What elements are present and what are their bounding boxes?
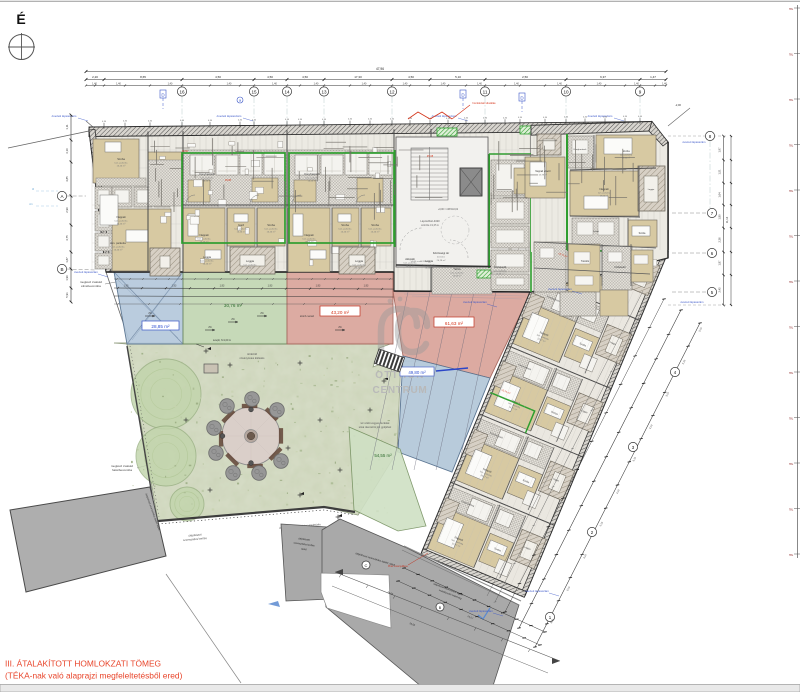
svg-text:Szoba: Szoba xyxy=(267,223,275,227)
svg-text:2%: 2% xyxy=(148,313,151,315)
svg-text:1,11: 1,11 xyxy=(65,124,69,130)
svg-text:54,55 m²: 54,55 m² xyxy=(374,453,392,458)
svg-text:5,10: 5,10 xyxy=(455,75,461,79)
svg-text:1,51: 1,51 xyxy=(718,169,722,175)
svg-text:homlokzati síkváltás: homlokzati síkváltás xyxy=(472,101,496,105)
svg-text:16,26 m²: 16,26 m² xyxy=(203,263,212,266)
svg-text:Tárolós: Tárolós xyxy=(581,260,590,263)
svg-text:lam. parketta: lam. parketta xyxy=(201,176,214,179)
svg-text:kerteme: kerteme xyxy=(437,256,446,259)
svg-text:2%: 2% xyxy=(260,313,263,315)
svg-text:1,40: 1,40 xyxy=(362,83,367,86)
svg-text:43,20 m²: 43,20 m² xyxy=(331,310,350,315)
svg-text:1,93: 1,93 xyxy=(268,285,273,288)
svg-text:Közlekedő: Közlekedő xyxy=(494,265,507,269)
svg-text:5,91: 5,91 xyxy=(65,292,69,298)
svg-text:lam. parketta: lam. parketta xyxy=(369,227,382,230)
svg-text:Szoba: Szoba xyxy=(341,223,349,227)
svg-text:78L: 78L xyxy=(789,53,794,57)
svg-text:-2,96: -2,96 xyxy=(675,103,681,107)
svg-text:61,63 m²: 61,63 m² xyxy=(445,321,464,326)
svg-text:utcai ütemszint jön gyűjtővel: utcai ütemszint jön gyűjtővel xyxy=(359,425,392,429)
svg-text:lam. parketta: lam. parketta xyxy=(198,237,211,240)
svg-text:78L: 78L xyxy=(789,98,794,102)
svg-text:23,98 m²: 23,98 m² xyxy=(539,173,548,176)
svg-text:1,40: 1,40 xyxy=(662,83,667,86)
svg-text:Nappali: Nappali xyxy=(116,215,126,219)
svg-text:1,40: 1,40 xyxy=(168,83,173,86)
svg-text:78L: 78L xyxy=(789,144,794,148)
svg-text:övezeti lépésszám: övezeti lépésszám xyxy=(469,609,493,613)
svg-text:14: 14 xyxy=(284,89,290,94)
svg-text:17,30: 17,30 xyxy=(354,75,362,79)
svg-text:Nappali: Nappali xyxy=(304,233,314,237)
svg-text:Közlekedő: Közlekedő xyxy=(614,266,626,269)
svg-text:örökzöld: örökzöld xyxy=(247,352,257,356)
svg-text:övezeti lépésszám: övezeti lépésszám xyxy=(548,287,572,291)
svg-text:Szoba: Szoba xyxy=(117,157,125,161)
svg-text:16,26 m²: 16,26 m² xyxy=(117,165,126,168)
svg-text:2,90: 2,90 xyxy=(65,207,69,213)
svg-text:1,40: 1,40 xyxy=(477,83,482,86)
svg-text:lam. parketta: lam. parketta xyxy=(494,269,507,272)
svg-text:(TÉKA-nak való alaprajzi megfe: (TÉKA-nak való alaprajzi megfeleltetésbő… xyxy=(5,671,183,681)
svg-text:2%: 2% xyxy=(208,327,211,329)
svg-text:1,97: 1,97 xyxy=(718,147,722,153)
svg-text:Szoba: Szoba xyxy=(622,149,630,153)
svg-text:1,93: 1,93 xyxy=(124,285,129,288)
svg-text:1,40: 1,40 xyxy=(634,83,639,86)
svg-text:16,26 m²: 16,26 m² xyxy=(246,267,255,270)
svg-text:Fürdő: Fürdő xyxy=(593,230,599,233)
svg-text:1,90: 1,90 xyxy=(65,275,69,281)
svg-text:1,47: 1,47 xyxy=(650,75,656,79)
svg-text:tér szélű vegyes burkolat: tér szélű vegyes burkolat xyxy=(361,421,390,425)
svg-text:lam. parketta: lam. parketta xyxy=(235,227,248,230)
svg-text:lam. parketta: lam. parketta xyxy=(115,219,128,222)
svg-text:19,06 m²: 19,06 m² xyxy=(600,195,609,198)
svg-text:15: 15 xyxy=(251,89,257,94)
svg-text:78L: 78L xyxy=(789,189,794,193)
svg-text:lam. parketta: lam. parketta xyxy=(620,153,633,156)
svg-text:a: a xyxy=(32,187,34,191)
svg-text:övezeti lépésszám: övezeti lépésszám xyxy=(217,114,242,118)
svg-text:16,26 m²: 16,26 m² xyxy=(406,265,415,268)
svg-text:4,50: 4,50 xyxy=(302,75,308,79)
svg-text:1,87: 1,87 xyxy=(718,260,722,266)
svg-text:tereplt, h=1,00 m: tereplt, h=1,00 m xyxy=(213,339,231,342)
svg-text:Nappali: Nappali xyxy=(599,187,609,191)
svg-text:növényzetes kiültetés: növényzetes kiültetés xyxy=(240,356,266,360)
svg-text:12: 12 xyxy=(389,89,395,94)
svg-text:49,80 m²: 49,80 m² xyxy=(408,370,426,375)
svg-text:1,40: 1,40 xyxy=(441,83,446,86)
svg-text:16,26 m²: 16,26 m² xyxy=(308,180,317,183)
svg-text:16,26 m²: 16,26 m² xyxy=(237,231,246,234)
svg-text:78L: 78L xyxy=(789,553,794,557)
svg-text:16,26 m²: 16,26 m² xyxy=(117,223,126,226)
svg-text:Lépcsőház-4320: Lépcsőház-4320 xyxy=(420,219,440,223)
svg-text:4,75: 4,75 xyxy=(65,235,69,241)
svg-text:1,64: 1,64 xyxy=(718,192,722,198)
svg-text:47,96: 47,96 xyxy=(376,67,384,71)
svg-text:16: 16 xyxy=(179,89,185,94)
svg-text:12,60 m²: 12,60 m² xyxy=(622,157,631,160)
svg-text:78L: 78L xyxy=(789,280,794,284)
svg-text:lam. parketta: lam. parketta xyxy=(598,191,611,194)
svg-text:±0,00: ±0,00 xyxy=(182,150,189,153)
svg-text:30,76 m²: 30,76 m² xyxy=(224,303,243,308)
svg-text:lam. parketta: lam. parketta xyxy=(353,263,366,266)
svg-text:8,65: 8,65 xyxy=(140,75,146,79)
svg-text:lam. parketta: lam. parketta xyxy=(339,227,352,230)
svg-text:1,93: 1,93 xyxy=(220,285,225,288)
svg-text:16,26 m²: 16,26 m² xyxy=(371,231,380,234)
svg-text:78L: 78L xyxy=(789,371,794,375)
svg-text:É: É xyxy=(16,11,25,27)
svg-text:1,40: 1,40 xyxy=(92,83,97,86)
svg-text:lam. parketta: lam. parketta xyxy=(265,227,278,230)
svg-text:4,50: 4,50 xyxy=(408,75,414,79)
svg-text:1,40: 1,40 xyxy=(116,83,121,86)
svg-text:Szoba: Szoba xyxy=(371,223,379,227)
svg-text:11: 11 xyxy=(483,89,488,94)
svg-text:Loggia: Loggia xyxy=(355,259,364,263)
svg-text:élmébevonóba: élmébevonóba xyxy=(81,284,101,288)
svg-text:16,26 m²: 16,26 m² xyxy=(496,273,505,276)
svg-text:C: C xyxy=(365,563,368,568)
svg-text:Loggia: Loggia xyxy=(246,259,255,263)
svg-text:2,36: 2,36 xyxy=(718,237,722,243)
svg-text:2,20: 2,20 xyxy=(92,75,98,79)
svg-text:Loggia: Loggia xyxy=(203,255,212,259)
svg-text:4,50: 4,50 xyxy=(215,75,221,79)
svg-text:övezeti lépésszám: övezeti lépésszám xyxy=(682,140,706,144)
svg-text:szóróba t=1,05 m: szóróba t=1,05 m xyxy=(421,224,439,227)
svg-text:övezeti lépésszám: övezeti lépésszám xyxy=(680,300,704,304)
svg-text:övezeti lépésszám: övezeti lépésszám xyxy=(588,114,613,118)
svg-text:1,93: 1,93 xyxy=(364,285,369,288)
svg-text:26,28 m²: 26,28 m² xyxy=(437,259,446,262)
svg-text:16,26 m²: 16,26 m² xyxy=(203,180,212,183)
svg-text:16,26 m²: 16,26 m² xyxy=(453,275,462,278)
svg-text:lam. parketta: lam. parketta xyxy=(303,237,316,240)
svg-text:III. ÁTALAKÍTOTT HOMLOKZATI TÖ: III. ÁTALAKÍTOTT HOMLOKZATI TÖMEG xyxy=(5,659,161,669)
svg-text:Gard: Gard xyxy=(238,223,244,227)
svg-text:Konyharészk: Konyharészk xyxy=(304,172,320,176)
svg-text:1,40: 1,40 xyxy=(314,83,319,86)
svg-text:1,80: 1,80 xyxy=(718,214,722,220)
svg-text:16,26 m²: 16,26 m² xyxy=(425,267,434,270)
svg-text:16,26 m²: 16,26 m² xyxy=(267,231,276,234)
svg-text:2,50: 2,50 xyxy=(522,75,528,79)
svg-text:lam. parketta: lam. parketta xyxy=(423,263,436,266)
svg-text:lam. parketta: lam. parketta xyxy=(110,241,126,245)
svg-text:1,87: 1,87 xyxy=(65,257,69,263)
svg-text:78L: 78L xyxy=(789,235,794,239)
svg-text:1,40: 1,40 xyxy=(272,83,277,86)
svg-text:A1: A1 xyxy=(29,202,33,206)
svg-text:övezeti lépésszám: övezeti lépésszám xyxy=(52,114,77,118)
svg-text:övezeti lépésszám: övezeti lépésszám xyxy=(463,300,487,304)
svg-text:1,40: 1,40 xyxy=(227,83,232,86)
svg-text:Loggia: Loggia xyxy=(425,259,434,263)
svg-text:45,08: 45,08 xyxy=(225,179,232,182)
svg-text:3,10: 3,10 xyxy=(65,148,69,154)
svg-text:16,26 m²: 16,26 m² xyxy=(341,231,350,234)
svg-text:lam. parketta: lam. parketta xyxy=(201,259,214,262)
svg-text:Szoba: Szoba xyxy=(639,232,646,235)
svg-text:2%: 2% xyxy=(338,327,341,329)
svg-text:4,85: 4,85 xyxy=(65,176,69,182)
svg-text:szonb. terasz: szonb. terasz xyxy=(300,315,315,318)
svg-text:Nappali: Nappali xyxy=(199,233,209,237)
svg-text:16,26 m²: 16,26 m² xyxy=(305,241,314,244)
svg-text:78L: 78L xyxy=(789,326,794,330)
svg-text:1,40: 1,40 xyxy=(597,83,602,86)
svg-text:78L: 78L xyxy=(789,417,794,421)
svg-text:határbevonóba: határbevonóba xyxy=(112,468,132,472)
svg-text:16,26 m²: 16,26 m² xyxy=(355,267,364,270)
svg-text:Akkpáló: Akkpáló xyxy=(405,257,415,261)
svg-text:78L: 78L xyxy=(789,508,794,512)
svg-text:B: B xyxy=(60,267,63,272)
svg-text:9: 9 xyxy=(639,89,642,94)
svg-text:1,93: 1,93 xyxy=(316,285,321,288)
svg-text:6,37: 6,37 xyxy=(600,75,606,79)
svg-text:10: 10 xyxy=(563,89,569,94)
svg-text:16,26 m²: 16,26 m² xyxy=(114,249,123,252)
svg-text:1,93: 1,93 xyxy=(172,285,177,288)
svg-text:16,26 m²: 16,26 m² xyxy=(200,241,209,244)
svg-text:4,50: 4,50 xyxy=(267,75,273,79)
svg-text:45,08: 45,08 xyxy=(427,155,434,158)
svg-text:1,40: 1,40 xyxy=(514,83,519,86)
svg-text:78L: 78L xyxy=(789,7,794,11)
svg-text:Nappali étkező: Nappali étkező xyxy=(535,170,551,173)
svg-text:lam. parketta: lam. parketta xyxy=(115,161,128,164)
svg-text:övezeti lépésszám: övezeti lépésszám xyxy=(525,589,549,593)
svg-text:lam. parketta: lam. parketta xyxy=(112,245,125,248)
svg-text:1,40: 1,40 xyxy=(557,83,562,86)
svg-text:lam. parketta: lam. parketta xyxy=(451,271,464,274)
svg-text:11,14: 11,14 xyxy=(725,216,729,223)
svg-text:78L: 78L xyxy=(789,462,794,466)
svg-text:1,40: 1,40 xyxy=(403,83,408,86)
svg-text:Loggia: Loggia xyxy=(648,189,655,191)
svg-text:CENTRUM: CENTRUM xyxy=(373,385,428,396)
svg-text:13: 13 xyxy=(321,89,327,94)
svg-text:Közösségi tér: Közösségi tér xyxy=(433,251,449,255)
svg-text:2,45: 2,45 xyxy=(718,287,722,293)
svg-text:2%: 2% xyxy=(231,319,234,321)
svg-text:övezeti lépésszám: övezeti lépésszám xyxy=(74,270,98,274)
svg-text:+0,00 = mBf 110,02: +0,00 = mBf 110,02 xyxy=(438,209,459,211)
svg-text:lam. parketta: lam. parketta xyxy=(404,261,417,264)
svg-text:28,85 m²: 28,85 m² xyxy=(151,324,170,329)
svg-text:lam. parketta: lam. parketta xyxy=(244,263,257,266)
svg-text:Tárlós: Tárlós xyxy=(453,267,461,271)
